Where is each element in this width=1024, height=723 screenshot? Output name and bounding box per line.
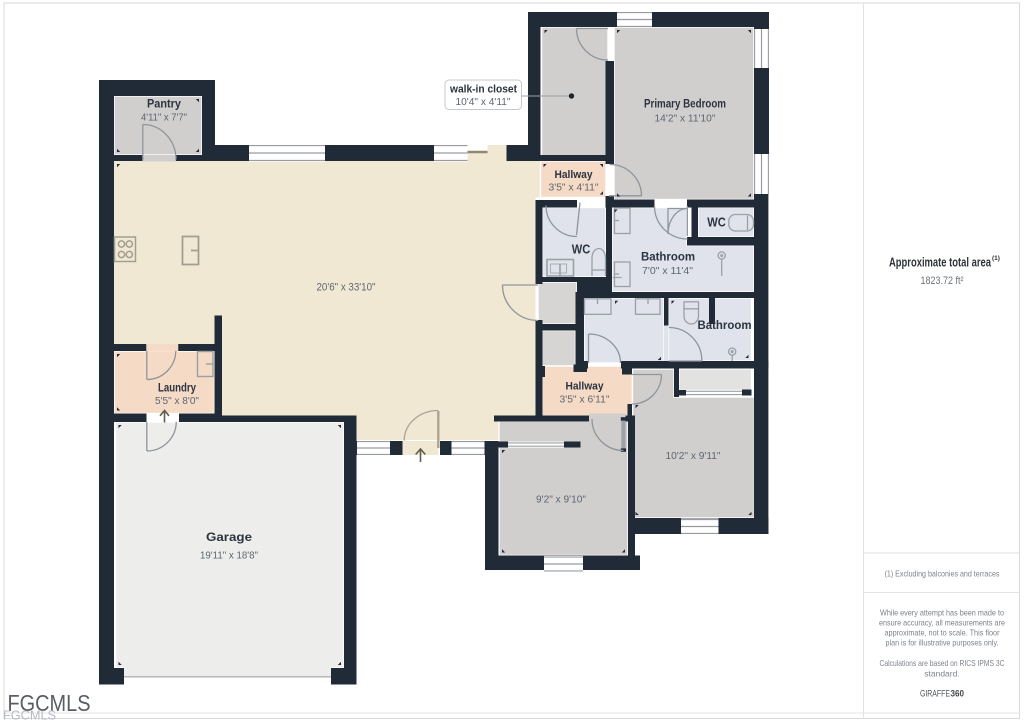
svg-text:1823.72 ft²: 1823.72 ft² [921,275,964,287]
svg-text:Laundry: Laundry [158,383,196,395]
svg-text:(1) Excluding balconies and te: (1) Excluding balconies and terraces [885,569,1000,579]
svg-text:Hallway: Hallway [555,169,594,181]
svg-text:Approximate total area: Approximate total area [889,256,992,270]
svg-text:standard.: standard. [924,669,959,679]
svg-text:360: 360 [951,689,965,700]
svg-text:Bathroom: Bathroom [698,318,752,332]
svg-text:3'5" x 4'11": 3'5" x 4'11" [549,183,599,194]
svg-text:10'4" x 4'11": 10'4" x 4'11" [456,97,511,108]
svg-text:WC: WC [707,215,726,230]
svg-text:10'2" x 9'11": 10'2" x 9'11" [666,450,721,462]
svg-text:19'11" x 18'8": 19'11" x 18'8" [200,550,258,562]
svg-text:20'6" x 33'10": 20'6" x 33'10" [317,282,376,294]
svg-text:9'2" x 9'10": 9'2" x 9'10" [536,494,586,506]
svg-text:Primary Bedroom: Primary Bedroom [644,97,726,111]
svg-text:Calculations are based on RICS: Calculations are based on RICS IPMS 3C [880,658,1005,668]
svg-text:5'5" x 8'0": 5'5" x 8'0" [155,396,199,407]
svg-text:14'2" x 11'10": 14'2" x 11'10" [655,113,716,125]
svg-text:walk-in closet: walk-in closet [449,84,517,96]
svg-text:(1): (1) [992,255,1000,262]
svg-text:Hallway: Hallway [566,381,605,393]
svg-text:3'5" x 6'11": 3'5" x 6'11" [560,395,610,406]
svg-text:ensure accuracy, all measureme: ensure accuracy, all measurements are [879,618,1005,628]
svg-text:While every attempt has been m: While every attempt has been made to [880,608,1004,618]
svg-text:GIRAFFE: GIRAFFE [920,689,950,700]
svg-text:Bathroom: Bathroom [641,250,695,264]
svg-text:7'0" x 11'4": 7'0" x 11'4" [642,266,693,277]
svg-text:Pantry: Pantry [147,99,182,111]
svg-text:approximate, not to scale. Thi: approximate, not to scale. This floor [885,628,1000,638]
svg-text:WC: WC [572,242,591,257]
svg-text:FGCMLS: FGCMLS [3,708,56,723]
svg-text:plan is for illustrative purpo: plan is for illustrative purposes only. [886,638,999,648]
svg-text:Garage: Garage [206,530,252,544]
svg-text:4'11" x 7'7": 4'11" x 7'7" [141,113,187,124]
